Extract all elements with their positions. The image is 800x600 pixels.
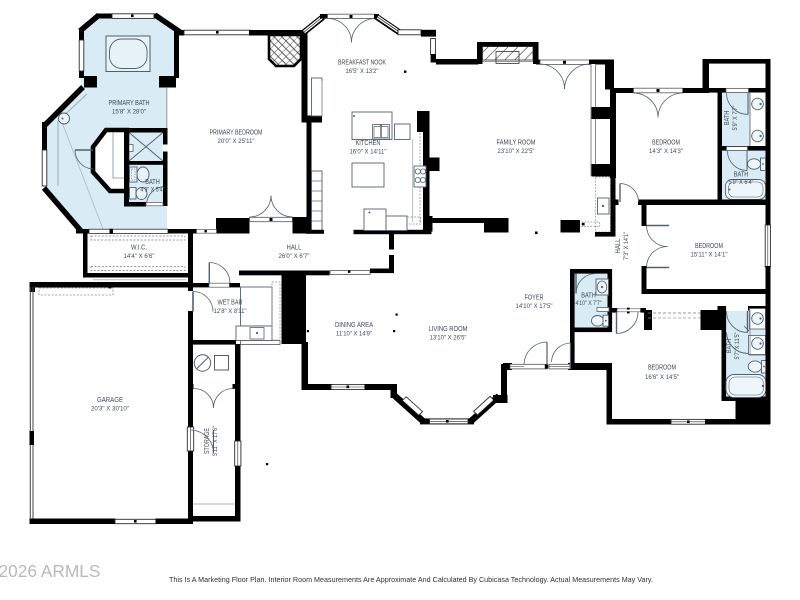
svg-text:BATH: BATH xyxy=(724,111,731,126)
svg-text:14'4" X 6'6": 14'4" X 6'6" xyxy=(124,253,155,260)
svg-text:5'9" X 7'7": 5'9" X 7'7" xyxy=(732,106,739,131)
svg-text:7'3" X 14'1": 7'3" X 14'1" xyxy=(623,232,630,260)
svg-text:5'9" X 6'4": 5'9" X 6'4" xyxy=(729,179,754,186)
svg-text:15'11" X 14'1": 15'11" X 14'1" xyxy=(691,252,728,259)
svg-text:W.I.C.: W.I.C. xyxy=(131,245,147,252)
svg-text:BEDROOM: BEDROOM xyxy=(652,140,680,147)
svg-text:26'0" X 6'7": 26'0" X 6'7" xyxy=(279,253,310,260)
svg-text:4'10" X 7'7": 4'10" X 7'7" xyxy=(576,300,602,307)
svg-text:BREAKFAST NOOK: BREAKFAST NOOK xyxy=(338,60,386,67)
svg-text:20'0" X 25'11": 20'0" X 25'11" xyxy=(218,138,255,145)
svg-text:14'3" X 14'3": 14'3" X 14'3" xyxy=(649,148,683,155)
svg-text:KITCHEN: KITCHEN xyxy=(356,140,381,147)
svg-text:BATH: BATH xyxy=(581,293,596,300)
svg-text:PRIMARY BATH: PRIMARY BATH xyxy=(109,100,150,107)
svg-text:5'7" X 11'5": 5'7" X 11'5" xyxy=(734,333,741,360)
svg-text:11'10" X 14'9": 11'10" X 14'9" xyxy=(336,331,372,338)
svg-text:20'3" X 30'10": 20'3" X 30'10" xyxy=(91,406,129,413)
svg-text:BATH: BATH xyxy=(145,179,160,186)
svg-text:BATH: BATH xyxy=(734,172,749,179)
svg-text:FAMILY ROOM: FAMILY ROOM xyxy=(497,140,536,147)
svg-text:15'8" X 28'0": 15'8" X 28'0" xyxy=(112,109,146,116)
svg-text:BEDROOM: BEDROOM xyxy=(648,365,676,372)
svg-text:BATH: BATH xyxy=(726,339,733,354)
svg-text:This Is A Marketing Floor Plan: This Is A Marketing Floor Plan. Interior… xyxy=(169,575,653,584)
svg-text:HALL: HALL xyxy=(287,245,302,252)
svg-text:BEDROOM: BEDROOM xyxy=(695,243,723,250)
svg-text:WET BAR: WET BAR xyxy=(218,300,243,307)
svg-text:5'11" X 17'6": 5'11" X 17'6" xyxy=(212,426,219,456)
svg-text:13'10" X 26'5": 13'10" X 26'5" xyxy=(430,335,467,342)
svg-text:23'10" X 22'5": 23'10" X 22'5" xyxy=(498,148,535,155)
svg-text:STORAGE: STORAGE xyxy=(204,428,211,454)
svg-text:16'0" X 14'11": 16'0" X 14'11" xyxy=(350,149,387,156)
svg-text:© 2026 ARMLS: © 2026 ARMLS xyxy=(0,561,100,581)
svg-text:HALL: HALL xyxy=(615,238,622,253)
svg-text:12'8" X 8'11": 12'8" X 8'11" xyxy=(214,308,247,315)
svg-text:16'5" X 13'2": 16'5" X 13'2" xyxy=(346,68,379,75)
svg-text:4'9" X 5'4": 4'9" X 5'4" xyxy=(141,187,165,194)
svg-text:LIVING ROOM: LIVING ROOM xyxy=(429,326,468,333)
svg-text:16'6" X 14'5": 16'6" X 14'5" xyxy=(645,374,679,381)
svg-text:14'10" X 17'5": 14'10" X 17'5" xyxy=(516,303,553,310)
svg-text:FOYER: FOYER xyxy=(525,295,544,302)
svg-text:GARAGE: GARAGE xyxy=(97,397,123,404)
svg-text:PRIMARY BEDROOM: PRIMARY BEDROOM xyxy=(210,130,263,137)
svg-text:DINING AREA: DINING AREA xyxy=(335,322,373,329)
